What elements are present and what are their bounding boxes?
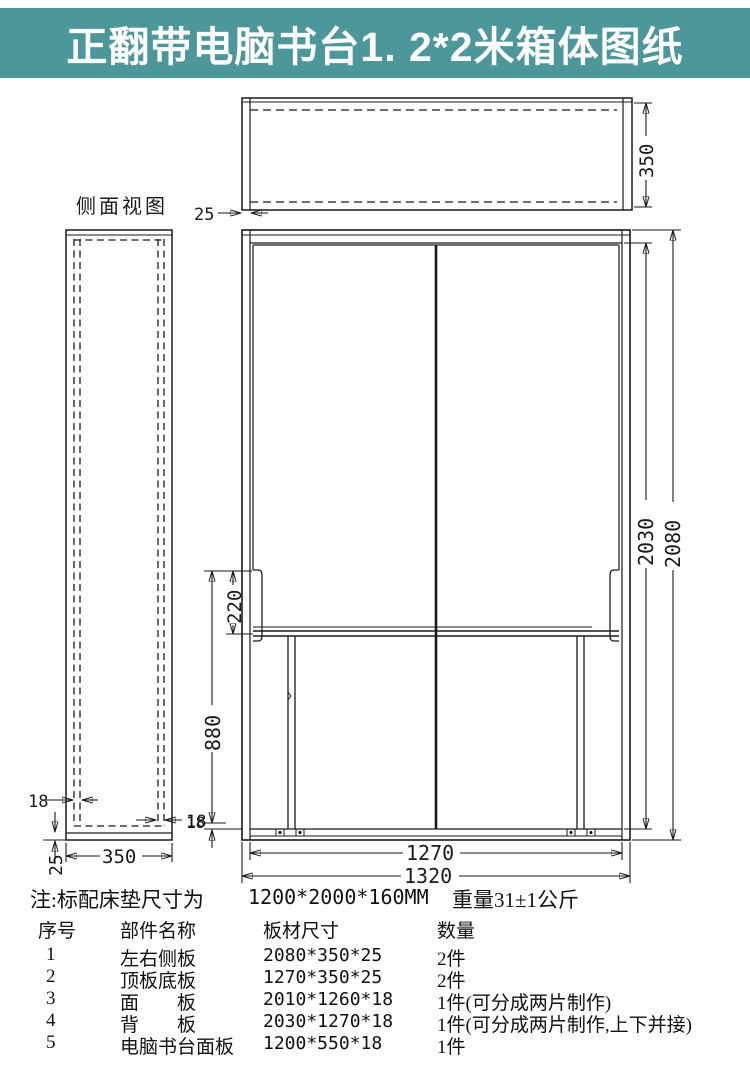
leg-foot-right bbox=[567, 829, 595, 836]
cell-size: 2080*350*25 bbox=[263, 945, 382, 966]
side-view: 侧面视图 18 18 bbox=[28, 195, 206, 876]
dim-front-18: 18 bbox=[186, 813, 242, 848]
table-row: 3 面 板 2010*1260*18 1件(可分成两片制作) bbox=[0, 988, 750, 1012]
dim-top-25: 25 bbox=[194, 205, 268, 225]
cell-no: 1 bbox=[46, 944, 56, 966]
side-view-hidden-lines bbox=[74, 239, 164, 826]
cell-no: 2 bbox=[46, 966, 56, 988]
dim-label: 18 bbox=[186, 813, 205, 832]
cell-no: 5 bbox=[46, 1032, 56, 1054]
table-row: 4 背 板 2030*1270*18 1件(可分成两片制作,上下并接) bbox=[0, 1010, 750, 1034]
top-view-hidden-lines bbox=[250, 110, 617, 202]
leg-foot-left bbox=[276, 829, 304, 836]
cell-no: 3 bbox=[46, 988, 56, 1010]
mattress-note: 注:标配床垫尺寸为 1200*2000*160MM 重量31±1公斤 bbox=[0, 884, 750, 910]
cell-no: 4 bbox=[46, 1010, 56, 1032]
dim-label: 2030 bbox=[634, 518, 658, 566]
cell-size: 2030*1270*18 bbox=[263, 1011, 393, 1032]
cell-name: 电脑书台面板 bbox=[120, 1032, 234, 1059]
dim-label: 1270 bbox=[406, 841, 454, 865]
bottom-board bbox=[250, 829, 622, 836]
dim-label: 2080 bbox=[661, 520, 685, 568]
table-row: 5 电脑书台面板 1200*550*18 1件 bbox=[0, 1032, 750, 1056]
dim-front-880: 880 bbox=[201, 571, 226, 823]
cell-size: 2010*1260*18 bbox=[263, 989, 393, 1010]
table-row: 2 顶板底板 1270*350*25 2件 bbox=[0, 966, 750, 990]
dim-side-25: 25 bbox=[43, 812, 67, 876]
top-view: 350 25 bbox=[194, 98, 658, 225]
dim-side-18-left: 18 bbox=[28, 792, 98, 812]
dim-front-220: 220 bbox=[204, 571, 253, 634]
note-label: 注:标配床垫尺寸为 bbox=[30, 884, 204, 914]
parts-table-header: 序号 部件名称 板材尺寸 数量 bbox=[0, 916, 750, 940]
dim-label: 350 bbox=[636, 144, 658, 178]
cell-size: 1200*550*18 bbox=[263, 1033, 382, 1054]
note-weight: 重量31±1公斤 bbox=[452, 884, 579, 914]
note-mattress-size: 1200*2000*160MM bbox=[248, 885, 429, 909]
dim-label: 880 bbox=[201, 715, 225, 751]
page: 正翻带电脑书台1. 2*2米箱体图纸 侧面视图 bbox=[0, 0, 750, 1078]
side-view-label: 侧面视图 bbox=[76, 195, 168, 218]
col-header-size: 板材尺寸 bbox=[263, 916, 339, 943]
face-panel bbox=[253, 245, 619, 829]
dim-front-2030: 2030 bbox=[624, 243, 658, 829]
cell-size: 1270*350*25 bbox=[263, 967, 382, 988]
col-header-no: 序号 bbox=[38, 916, 76, 943]
cell-qty: 1件 bbox=[437, 1032, 466, 1059]
dim-label: 25 bbox=[46, 854, 67, 876]
dim-label: 25 bbox=[194, 205, 214, 225]
dim-top-350: 350 bbox=[634, 103, 658, 207]
dim-label: 220 bbox=[224, 590, 246, 624]
col-header-name: 部件名称 bbox=[120, 916, 196, 943]
dim-label: 18 bbox=[28, 792, 48, 812]
table-row: 1 左右侧板 2080*350*25 2件 bbox=[0, 944, 750, 968]
dim-label: 350 bbox=[102, 846, 136, 868]
dim-front-1270: 1270 bbox=[250, 841, 622, 865]
front-view: 2030 2080 220 bbox=[186, 230, 685, 888]
col-header-qty: 数量 bbox=[437, 916, 475, 943]
dim-side-350: 350 bbox=[66, 843, 172, 868]
